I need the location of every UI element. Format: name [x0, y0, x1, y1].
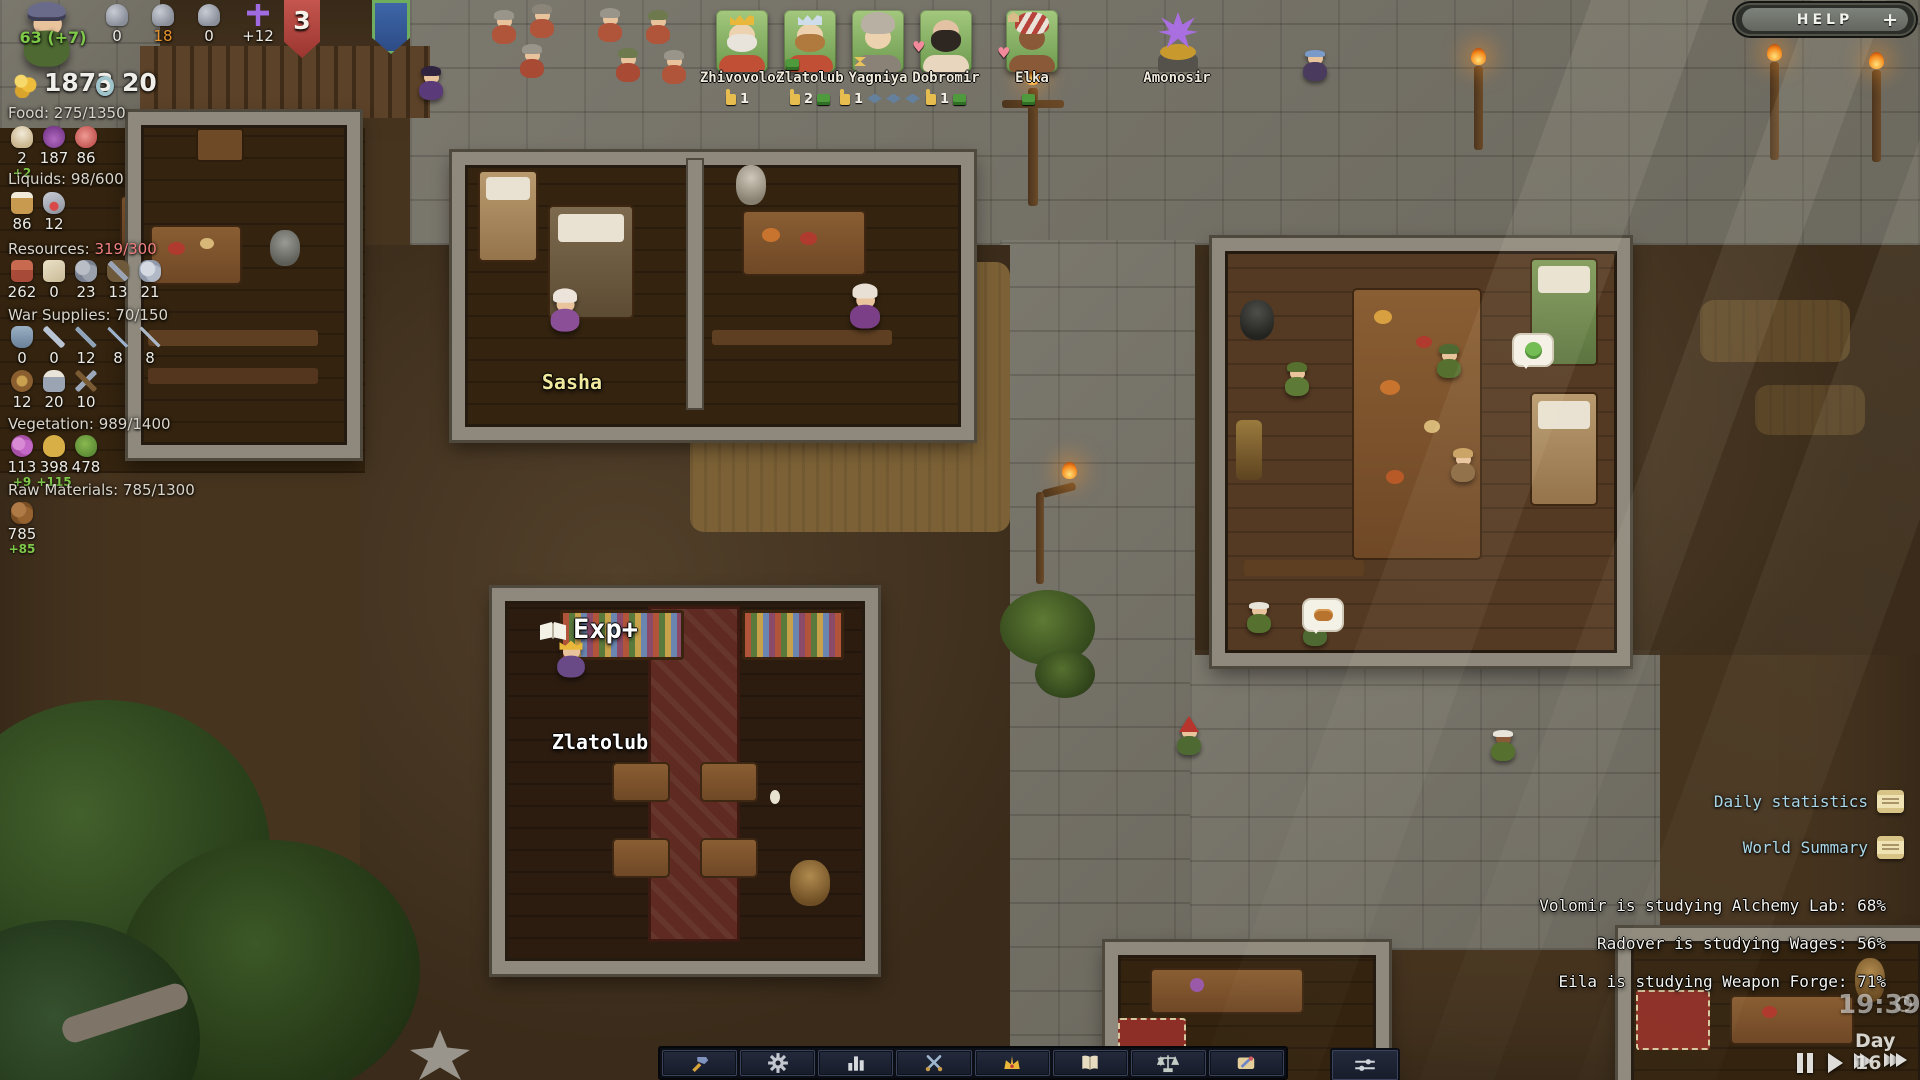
cauldron [1240, 300, 1274, 340]
interior-wall [688, 160, 702, 408]
help-plus-icon: + [1882, 9, 1898, 31]
resources-section-label: Resources: 319/300 [8, 240, 157, 258]
torch-flame [1062, 462, 1077, 479]
bench [148, 330, 318, 346]
study-notification[interactable]: Radover is studying Wages: 56% [1597, 934, 1886, 953]
citizen-ring-icon [106, 4, 128, 26]
settings-gear-button[interactable] [740, 1050, 815, 1076]
stat-value: 0 [204, 28, 214, 45]
armor-icon [11, 326, 33, 348]
play-button[interactable] [1828, 1053, 1853, 1073]
logs-icon [11, 502, 33, 524]
unit-label-zlatolub[interactable]: Zlatolub [540, 730, 660, 754]
villager-monk[interactable] [418, 66, 444, 100]
world-summary-button[interactable]: World Summary [1743, 836, 1904, 859]
threat-count: 3 [293, 6, 310, 58]
beet-icon [43, 126, 65, 148]
villager[interactable] [1490, 730, 1516, 761]
edicts-scroll-button[interactable] [1209, 1050, 1284, 1076]
stat-value: 18 [153, 28, 172, 45]
portrait-zlatolub[interactable] [784, 10, 836, 72]
villager[interactable] [1246, 602, 1272, 633]
desk[interactable] [612, 762, 670, 802]
mood-bubble[interactable] [1512, 333, 1554, 367]
helmet-icon [43, 370, 65, 392]
bench [712, 330, 892, 345]
wheat-icon [43, 435, 65, 457]
scroll-icon [1877, 790, 1904, 813]
book-badge-icon [953, 94, 966, 105]
filters-sliders-button[interactable] [1330, 1048, 1400, 1080]
portrait-elka[interactable] [1006, 10, 1058, 72]
character-sasha[interactable] [549, 288, 580, 331]
ring-icon [96, 76, 114, 96]
villager-red-hood[interactable] [1176, 716, 1202, 755]
villager[interactable] [1284, 362, 1310, 396]
happy-face-icon [1525, 342, 1542, 359]
cream-icon [11, 126, 33, 148]
food-section-label: Food: 275/1350 [8, 104, 126, 122]
build-hammer-button[interactable] [662, 1050, 737, 1076]
food-icon [1314, 609, 1333, 621]
desk[interactable] [612, 838, 670, 878]
hay-patch [1755, 385, 1865, 435]
gold-coins-icon [12, 74, 38, 98]
knowledge-book-button[interactable] [1053, 1050, 1128, 1076]
book-badge-icon [817, 94, 830, 105]
knife-icon [139, 326, 161, 348]
villager[interactable] [1436, 344, 1462, 378]
faith-cross-icon [247, 4, 269, 26]
iron-ore-icon [139, 260, 161, 282]
daily-statistics-button[interactable]: Daily statistics [1714, 790, 1904, 813]
spear-icon [75, 326, 97, 348]
stone-icon [75, 260, 97, 282]
raw-materials-section-label: Raw Materials: 785/1300 [8, 481, 195, 499]
scroll-icon [1877, 836, 1904, 859]
love-heart-icon: ♥ [912, 38, 925, 56]
wooden-fence [140, 46, 430, 118]
exp-gain-label: Exp+ [540, 614, 638, 645]
bench [1244, 560, 1364, 576]
studying-book-icon [786, 59, 799, 70]
barrel [270, 230, 300, 266]
love-heart-icon: ♥ [997, 44, 1010, 62]
military-swords-button[interactable] [896, 1050, 971, 1076]
laws-scales-button[interactable] [1131, 1050, 1206, 1076]
statistics-chart-button[interactable] [818, 1050, 893, 1076]
house-icon [1008, 12, 1019, 22]
portrait-dobromir[interactable] [920, 10, 972, 72]
resources-over-capacity: 319/300 [94, 240, 156, 258]
citizen-lost-icon [152, 4, 174, 26]
open-book-icon [540, 622, 566, 640]
hay-patch [1700, 300, 1850, 362]
unit-label-sasha[interactable]: Sasha [512, 370, 632, 394]
vegetation-section-label: Vegetation: 989/1400 [8, 415, 171, 433]
game-clock: 19:39 [1838, 990, 1920, 1020]
beer-mug-icon [11, 192, 33, 214]
torch-flame [1471, 48, 1486, 65]
graduation-cap-icon [867, 94, 882, 105]
torch-flame [1767, 44, 1782, 61]
shield-icon [11, 370, 33, 392]
soup-bowl [168, 242, 185, 255]
citizen-icon [198, 4, 220, 26]
villager-woman[interactable] [849, 284, 882, 329]
kingdom-crown-button[interactable] [975, 1050, 1050, 1076]
bread [200, 238, 214, 249]
desk[interactable] [700, 838, 758, 878]
villager[interactable] [1450, 448, 1476, 482]
war-section-label: War Supplies: 70/150 [8, 306, 168, 324]
torch-flame [1869, 52, 1884, 69]
crossbow-icon [75, 370, 97, 392]
food-plate [800, 232, 817, 245]
stat-value: +12 [242, 28, 274, 45]
bookshelf[interactable] [742, 610, 844, 660]
villager[interactable] [1302, 50, 1328, 81]
study-notification[interactable]: Eila is studying Weapon Forge: 71% [1558, 972, 1886, 991]
paper-icon [43, 260, 65, 282]
study-notification[interactable]: Volomir is studying Alchemy Lab: 68% [1539, 896, 1886, 915]
tools-icon [107, 260, 129, 282]
approval-icon [926, 94, 936, 105]
sword-icon [43, 326, 65, 348]
broom [1236, 420, 1262, 480]
quill [770, 790, 780, 804]
approval-icon [726, 94, 736, 105]
meat-icon [75, 126, 97, 148]
long-table[interactable] [1352, 288, 1482, 560]
idol-amonosir[interactable] [1152, 12, 1204, 72]
help-button[interactable]: HELP+ [1734, 3, 1916, 36]
portrait-zhivovolod[interactable] [716, 10, 768, 72]
portrait-yagniya[interactable] [852, 10, 904, 72]
pause-button[interactable] [1797, 1053, 1813, 1073]
approval-icon [840, 94, 850, 105]
food-plate [762, 228, 780, 242]
amphora [736, 165, 766, 205]
hops-icon [75, 435, 97, 457]
arrow-icon [107, 326, 129, 348]
potion-icon [43, 192, 65, 214]
graduation-cap-icon [886, 94, 901, 105]
clay-bricks-icon [11, 260, 33, 282]
liquids-section-label: Liquids: 98/600 [8, 170, 124, 188]
globe [790, 860, 830, 906]
game-viewport: Sasha Exp+ Zlatolub 63 (+7) 0 18 0 +12 [0, 0, 1920, 1080]
character-zlatolub[interactable] [556, 640, 586, 678]
rings-amount: 20 [122, 68, 157, 97]
bottom-toolbar [658, 1046, 1288, 1080]
graduation-cap-icon [905, 94, 920, 105]
day-counter: Day 16 [1855, 1030, 1920, 1074]
chest [196, 128, 244, 162]
book-badge-icon [1022, 94, 1035, 105]
pattern-rug [1636, 990, 1710, 1050]
stat-value: 0 [112, 28, 122, 45]
bench [148, 368, 318, 384]
flowers-vase [1190, 978, 1204, 992]
bush [1035, 650, 1095, 698]
flower-icon [11, 435, 33, 457]
desk[interactable] [700, 762, 758, 802]
approval-icon [790, 94, 800, 105]
need-bubble[interactable] [1302, 598, 1344, 632]
